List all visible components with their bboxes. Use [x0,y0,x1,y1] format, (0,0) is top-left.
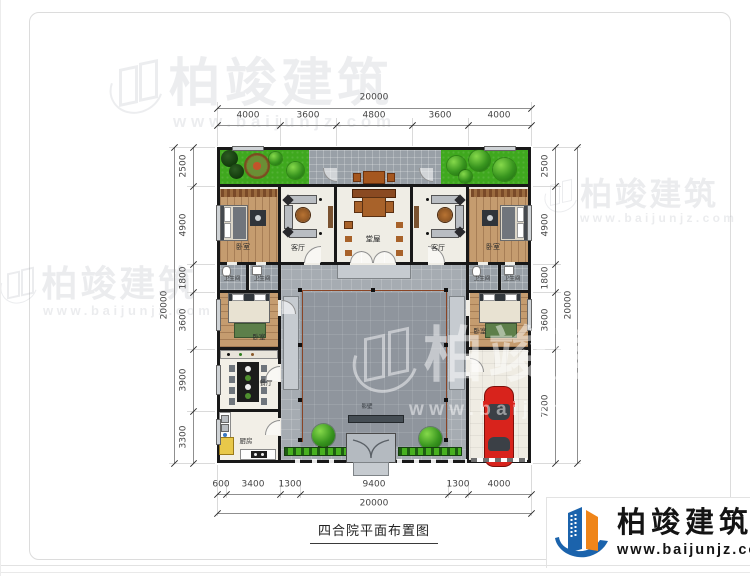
tree-icon [493,158,516,181]
room-label-bathroom: 卫生间 [474,274,491,282]
garage-door [471,458,527,462]
room-label-kitchen: 厨房 [240,435,253,445]
drawing-sheet: 柏竣建筑 www.baijunjz.com 柏竣建筑 www.baijunjz.… [0,0,750,576]
dim-label: 3600 [297,112,320,121]
window [485,147,515,150]
kitchen-stove [241,450,275,459]
wall [217,409,280,412]
wall [466,186,469,264]
dim-label: 3600 [542,309,551,332]
bed [480,294,520,322]
tree-icon [469,150,490,171]
courtyard-tree [312,424,335,447]
room-label-bedroom-nw: 卧室 [236,242,250,252]
flower-bed [246,155,268,177]
door-opening [256,262,266,265]
door-opening [505,262,515,265]
terrace-chair [353,173,361,182]
hall-side-chairs [345,222,352,228]
entrance-gate [347,434,395,462]
dim-label: 20000 [565,291,574,320]
altar-table [353,190,395,197]
dim-line-bottom-total [217,513,531,514]
window [528,300,531,330]
footer-rule [1,565,750,566]
east-veranda-steps [449,296,465,390]
sink-icon [505,267,513,274]
dim-line-left-total [174,147,175,463]
room-label-living-east: 客厅 [431,243,445,253]
hedge-east [398,447,462,456]
dim-label: 4000 [237,112,260,121]
tv-cabinet [328,206,333,228]
dim-label: 4900 [542,214,551,237]
dim-label: 4000 [488,112,511,121]
door-opening [466,356,469,376]
dim-label: 3900 [180,369,189,392]
wardrobe [471,189,527,197]
hall-chair [355,202,362,212]
dim-label: 3400 [242,481,265,490]
dim-label: 2500 [542,155,551,178]
dim-label: 9400 [363,481,386,490]
bed [229,294,269,322]
bed [501,206,528,240]
dim-label: 600 [212,481,229,490]
sideboard [221,351,277,358]
door-opening [227,262,237,265]
conifer-icon [229,164,244,179]
wall [217,347,280,350]
room-label-bathroom: 卫生间 [224,274,241,282]
window [217,300,220,330]
dim-label: 3600 [429,112,452,121]
logo-icon [551,502,611,565]
screen-wall [349,416,403,422]
room-label-bedroom-west: 卧室 [253,331,266,341]
terrace-table [363,171,385,184]
hall-steps [337,264,411,279]
logo-brand: 柏竣建筑 [617,508,750,540]
wall [246,264,249,292]
dim-line-top-total [217,108,531,109]
room-label-hall: 堂屋 [366,234,381,245]
room-label-bathroom: 卫生间 [504,274,521,282]
dim-line-bottom-segments [217,494,531,495]
wall [410,186,413,264]
window [217,366,220,394]
dim-label: 4000 [488,481,511,490]
dim-label: 20000 [360,94,389,103]
window [217,420,220,444]
dim-label: 1300 [279,481,302,490]
dim-label: 3600 [180,309,189,332]
eave-line [446,290,447,442]
room-label-dining: 餐厅 [260,377,273,387]
dim-label: 20000 [161,291,170,320]
dim-label: 20000 [360,500,389,509]
car [485,387,513,466]
room-label-screen-wall: 影壁 [361,402,372,410]
dim-line-right-segments [555,147,556,463]
room-label-living-west: 客厅 [291,243,305,253]
door-opening [478,262,488,265]
window [233,147,263,150]
bush-icon [269,152,282,165]
dim-label: 4900 [180,214,189,237]
hall-table [363,198,385,216]
logo-url: www.baijunjz.com [617,542,750,558]
sofa-set [424,194,464,240]
dim-line-left-segments [193,147,194,463]
eave-line [302,290,446,291]
window [217,206,220,240]
window [528,206,531,240]
dim-label: 3300 [180,426,189,449]
bed [220,206,247,240]
door-opening [278,300,281,316]
dining-chairs [229,365,235,372]
sink-icon [253,267,261,274]
dim-label: 1300 [447,481,470,490]
room-label-bathroom: 卫生间 [254,274,271,282]
wall [334,186,337,264]
wardrobe [221,189,277,197]
dim-label: 7200 [542,395,551,418]
wall [217,184,531,187]
room-label-bedroom-east: 卧室 [474,325,487,335]
wall [278,186,281,264]
fireplace [250,210,266,226]
dining-table [237,362,259,402]
tree-icon [287,162,304,179]
logo: 柏竣建筑 www.baijunjz.com [546,497,750,568]
dim-label: 1800 [542,267,551,290]
terrace-chair [387,173,395,182]
tv-cabinet [414,206,419,228]
sofa-set [284,194,324,240]
room-label-bedroom-ne: 卧室 [486,242,500,252]
wall [498,264,501,292]
veranda-columns [298,288,302,292]
dim-label: 2500 [180,155,189,178]
door-opening [466,300,469,316]
gate-step [353,462,389,476]
fireplace [482,210,498,226]
eave-line [302,290,303,442]
tree-icon [459,170,472,183]
drawing-title: 四合院平面布置图 [310,520,438,544]
wall [468,347,531,350]
kitchen-cabinet [220,438,233,454]
kitchen-counter [220,413,230,437]
footer-rule [1,572,750,573]
dim-line-right-total [577,147,578,463]
rug [486,324,516,337]
hall-chair [386,202,393,212]
dim-line-top-segments [217,125,531,126]
dim-label: 4800 [363,112,386,121]
dim-label: 1800 [180,267,189,290]
hedge-west [284,447,347,456]
